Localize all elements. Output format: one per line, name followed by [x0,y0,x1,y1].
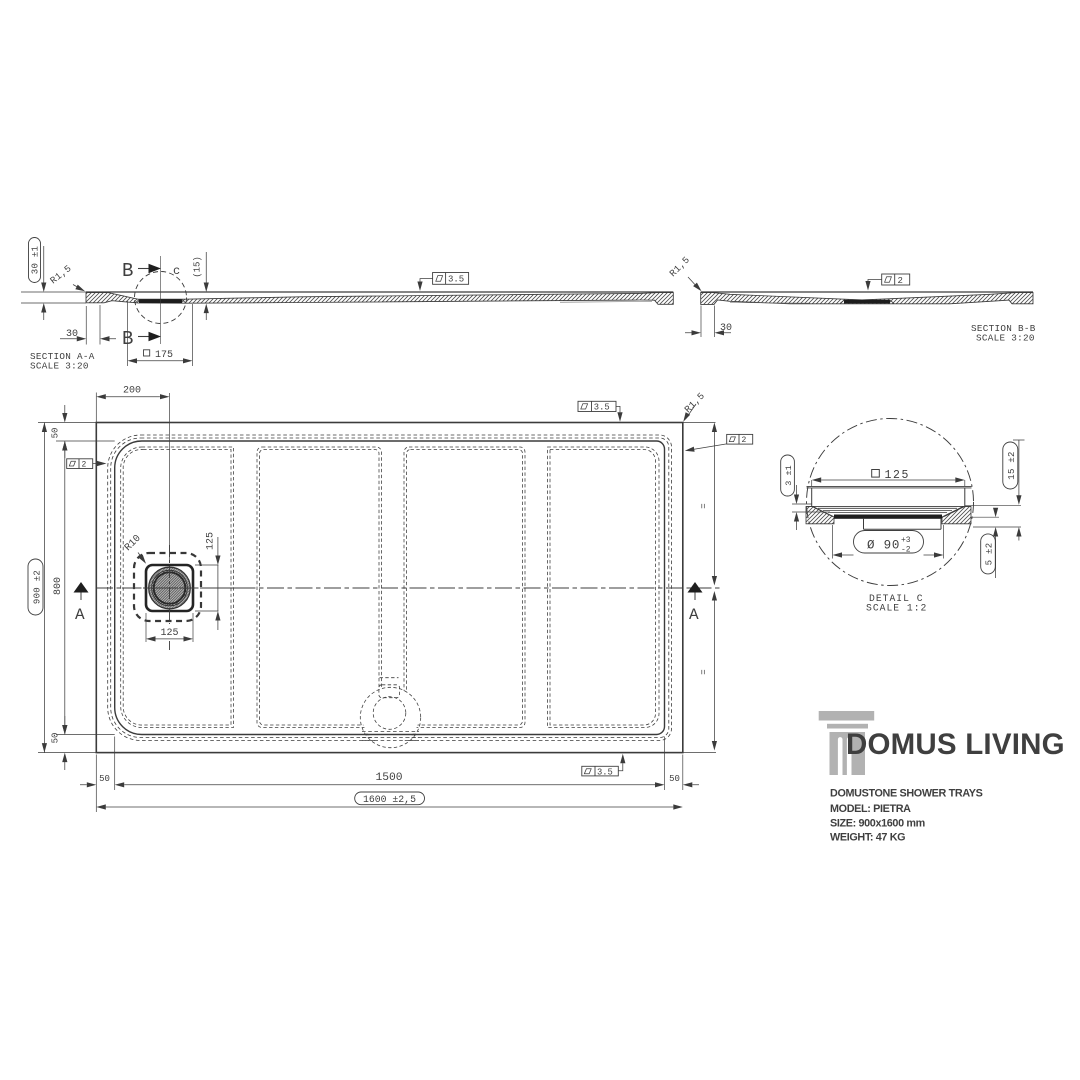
svg-text:R10: R10 [123,533,144,554]
svg-text:(15): (15) [193,256,203,278]
svg-text:800: 800 [53,577,64,595]
svg-text:DOMUSTONE SHOWER TRAYS: DOMUSTONE SHOWER TRAYS [830,788,983,800]
svg-text:Ø 90: Ø 90 [867,539,900,553]
svg-text:50: 50 [669,774,680,784]
svg-text:175: 175 [155,350,173,361]
svg-text:R1,5: R1,5 [667,254,692,279]
svg-text:R1,5: R1,5 [48,263,74,286]
svg-text:MODEL: PIETRA: MODEL: PIETRA [830,803,911,815]
svg-text:=: = [699,503,709,508]
svg-text:+3: +3 [901,536,911,545]
svg-text:30: 30 [66,329,78,340]
svg-text:3.5: 3.5 [448,275,464,285]
svg-text:DOMUS LIVING: DOMUS LIVING [846,728,1065,761]
svg-text:50: 50 [51,733,61,744]
svg-text:200: 200 [123,386,141,397]
svg-text:SCALE 3:20: SCALE 3:20 [976,333,1035,344]
svg-text:A: A [689,606,699,624]
svg-text:5 ±2: 5 ±2 [985,543,995,566]
svg-text:B: B [122,328,133,350]
svg-text:SIZE: 900x1600 mm: SIZE: 900x1600 mm [830,818,925,830]
svg-text:50: 50 [51,428,61,439]
svg-text:125: 125 [160,628,178,639]
svg-text:2: 2 [898,276,903,286]
svg-text:125: 125 [206,532,217,550]
svg-text:B: B [122,260,133,282]
svg-text:R1,5: R1,5 [682,390,707,415]
svg-text:2: 2 [742,436,747,445]
svg-text:30 ±1: 30 ±1 [31,246,41,275]
svg-text:1500: 1500 [375,772,402,784]
svg-text:900 ±2: 900 ±2 [32,570,42,604]
svg-text:SCALE 1:2: SCALE 1:2 [866,603,927,614]
svg-text:1600 ±2,5: 1600 ±2,5 [363,794,416,805]
svg-text:50: 50 [99,774,110,784]
svg-text:2: 2 [82,461,87,470]
svg-text:-2: -2 [901,546,911,555]
svg-text:3.5: 3.5 [594,403,610,413]
svg-text:3.5: 3.5 [597,767,613,777]
svg-text:c: c [173,264,180,278]
svg-text:=: = [699,669,709,674]
svg-text:15 ±2: 15 ±2 [1007,451,1017,480]
svg-text:3 ±1: 3 ±1 [784,465,794,485]
svg-text:A: A [75,606,85,624]
svg-text:SCALE 3:20: SCALE 3:20 [30,361,89,372]
svg-text:WEIGHT: 47 KG: WEIGHT: 47 KG [830,832,905,844]
